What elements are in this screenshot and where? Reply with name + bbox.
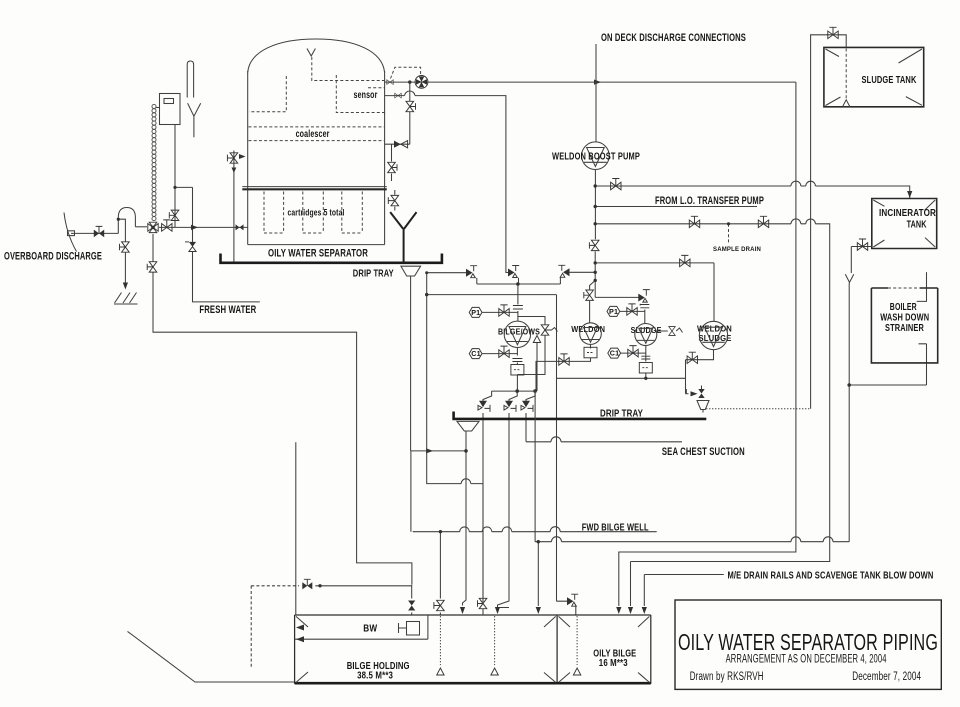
svg-text:WELDON BOOST PUMP: WELDON BOOST PUMP — [552, 152, 640, 163]
svg-text:P1: P1 — [609, 307, 618, 316]
svg-text:Drawn by RKS/RVH: Drawn by RKS/RVH — [690, 671, 764, 683]
svg-text:OILY WATER SEPARATOR: OILY WATER SEPARATOR — [268, 248, 368, 260]
svg-text:WASH DOWN: WASH DOWN — [880, 313, 929, 324]
svg-text:SAMPLE DRAIN: SAMPLE DRAIN — [713, 247, 761, 253]
svg-text:SLUDGE TANK: SLUDGE TANK — [862, 75, 917, 86]
svg-text:STRAINER: STRAINER — [885, 323, 924, 334]
svg-text:coalescer: coalescer — [296, 129, 330, 140]
svg-text:M/E DRAIN RAILS AND SCAVENGE T: M/E DRAIN RAILS AND SCAVENGE TANK BLOW D… — [728, 571, 934, 582]
svg-text:sensor: sensor — [354, 90, 378, 101]
svg-text:cartridges 5 total: cartridges 5 total — [288, 208, 345, 218]
svg-text:ON DECK DISCHARGE CONNECTIONS: ON DECK DISCHARGE CONNECTIONS — [601, 32, 746, 44]
svg-text:TANK: TANK — [907, 220, 927, 231]
svg-text:OILY WATER SEPARATOR PIPING: OILY WATER SEPARATOR PIPING — [678, 629, 938, 655]
svg-text:FROM L.O. TRANSFER PUMP: FROM L.O. TRANSFER PUMP — [655, 195, 764, 207]
svg-text:38.5 M**3: 38.5 M**3 — [357, 671, 393, 682]
svg-text:December 7, 2004: December 7, 2004 — [852, 671, 921, 683]
svg-text:P1: P1 — [471, 308, 480, 317]
svg-text:BW: BW — [363, 624, 377, 635]
svg-text:FRESH WATER: FRESH WATER — [199, 304, 256, 316]
svg-text:INCINERATOR: INCINERATOR — [879, 208, 936, 219]
svg-text:OVERBOARD DISCHARGE: OVERBOARD DISCHARGE — [4, 251, 102, 263]
svg-text:DRIP TRAY: DRIP TRAY — [353, 269, 394, 280]
svg-text:BOILER: BOILER — [890, 302, 917, 313]
svg-text:SEA CHEST SUCTION: SEA CHEST SUCTION — [662, 446, 745, 458]
svg-text:C1: C1 — [610, 349, 620, 358]
svg-text:16 M**3: 16 M**3 — [599, 658, 628, 669]
svg-text:C1: C1 — [471, 349, 481, 358]
